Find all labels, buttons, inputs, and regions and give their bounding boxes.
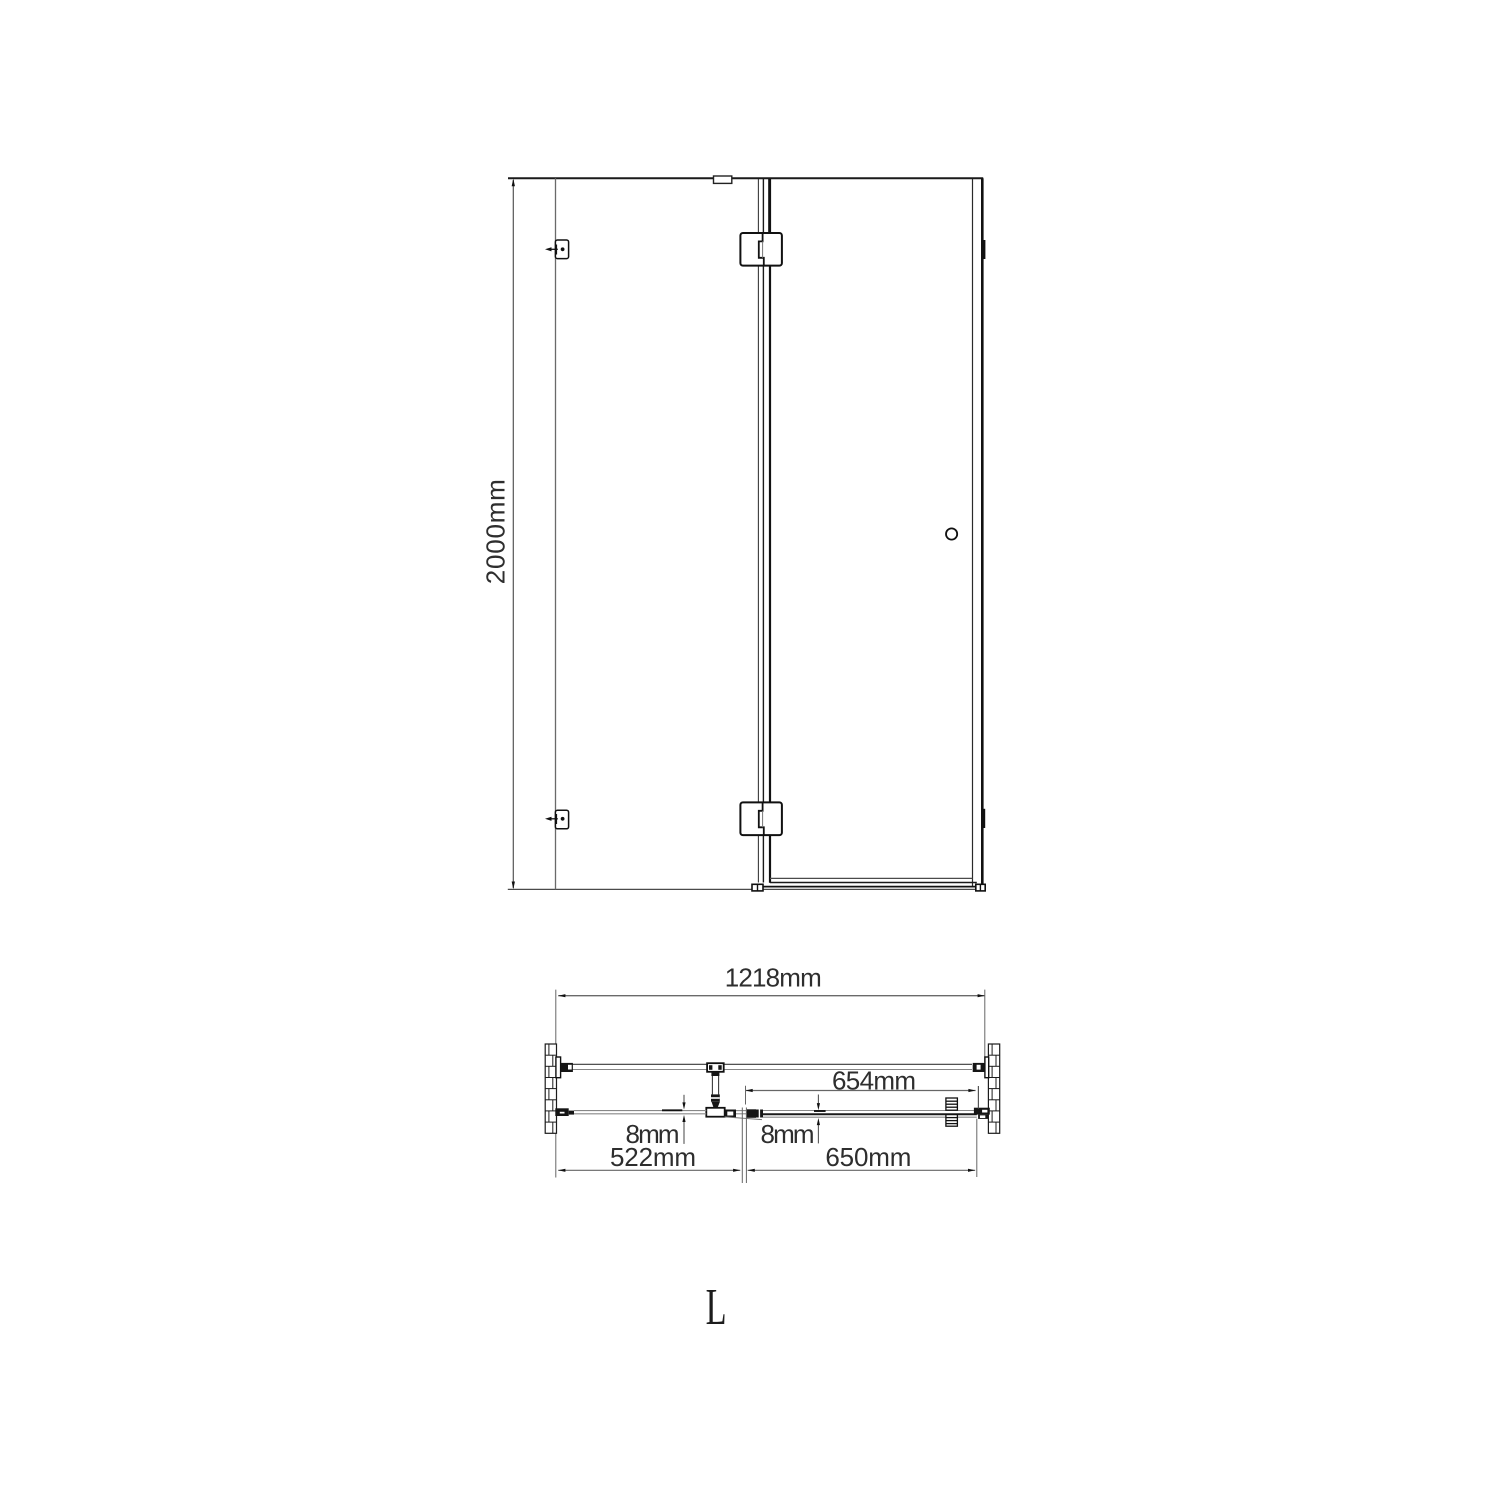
svg-text:L: L: [706, 1278, 727, 1336]
svg-text:522mm: 522mm: [610, 1142, 696, 1172]
svg-text:8mm: 8mm: [761, 1119, 815, 1149]
svg-text:650mm: 650mm: [825, 1142, 911, 1172]
svg-text:2000mm: 2000mm: [480, 479, 510, 584]
svg-text:654mm: 654mm: [832, 1066, 916, 1096]
svg-text:1218mm: 1218mm: [725, 963, 822, 993]
